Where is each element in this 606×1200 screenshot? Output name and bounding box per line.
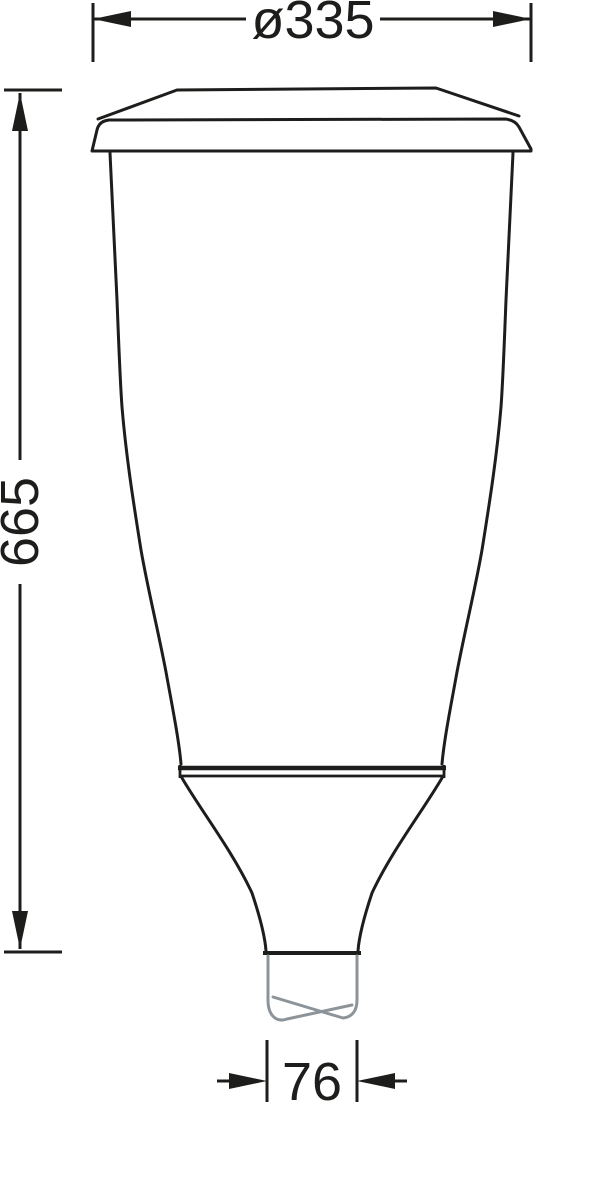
cap-lid bbox=[98, 88, 519, 119]
neck-right-edge bbox=[358, 778, 442, 951]
pole-break-symbol bbox=[268, 956, 357, 1020]
pole-right-edge-break bbox=[273, 956, 357, 1018]
body-left-edge bbox=[110, 153, 181, 764]
dimension-spigot: 76 bbox=[217, 1040, 407, 1112]
arrow-left-icon bbox=[93, 11, 131, 27]
arrow-down-icon bbox=[12, 911, 28, 949]
pole-left-edge-break bbox=[268, 956, 352, 1020]
arrow-inward-right-icon bbox=[357, 1073, 395, 1089]
arrow-inward-left-icon bbox=[229, 1073, 267, 1089]
height-dimension-label: 665 bbox=[0, 477, 50, 567]
arrow-up-icon bbox=[12, 93, 28, 131]
body-right-edge bbox=[442, 153, 513, 764]
luminaire-outline bbox=[92, 88, 531, 953]
cap-skirt bbox=[92, 119, 531, 151]
dimension-diameter: ø335 bbox=[93, 0, 531, 62]
drawing-canvas: ø335 665 bbox=[0, 0, 606, 1200]
diameter-dimension-label: ø335 bbox=[251, 0, 374, 50]
technical-drawing: ø335 665 bbox=[0, 0, 606, 1200]
arrow-right-icon bbox=[493, 11, 531, 27]
dimension-height: 665 bbox=[0, 90, 62, 952]
neck-left-edge bbox=[182, 778, 266, 951]
spigot-dimension-label: 76 bbox=[282, 1052, 342, 1112]
